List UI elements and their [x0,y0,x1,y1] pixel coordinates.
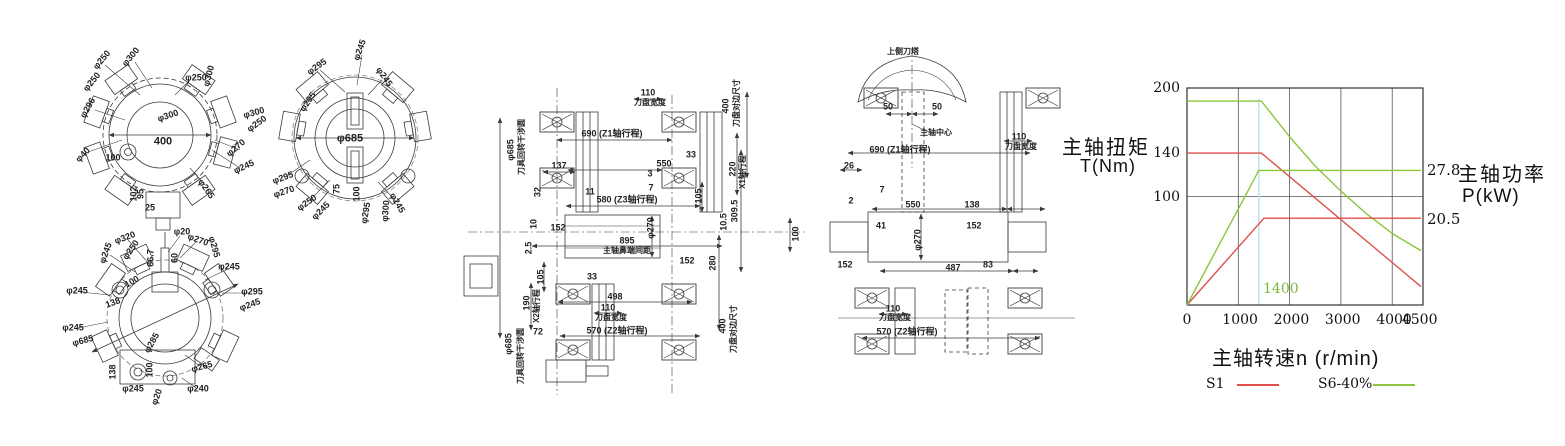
dimension-label: 33 [587,273,597,282]
dimension-label: 100 [792,226,801,241]
dimension-label: 152 [550,224,565,233]
dimension-label: 3 [647,170,652,179]
chart-ylabel-torque-unit: T(Nm) [1080,156,1136,177]
dimension-label: X1轴行程 [739,155,747,189]
dimension-label: 580 (Z3轴行程) [596,196,657,205]
dimension-label: φ245 [352,38,368,61]
dimension-label: φ300 [381,200,392,222]
dimension-label: 550 [656,160,671,169]
dimension-label: 110 [601,304,616,313]
dimension-label: φ250 [121,239,141,262]
dimension-label: 105 [695,188,704,203]
dimension-label: 690 (Z1轴行程) [581,130,642,139]
dimension-label: 110 [886,305,901,314]
dimension-label: φ295 [207,235,221,258]
dimension-label: φ295 [271,170,294,186]
dimension-label: φ270 [186,232,209,248]
chart-xlabel: 主轴转速n (r/min) [1212,342,1379,371]
turret-disc-a [84,62,240,230]
dimension-label: 2 [848,197,853,206]
dimension-label: 110 [641,89,656,98]
dimension-label: φ245 [310,200,332,222]
dimension-label: φ245 [122,385,143,394]
chart-tick-label: 1000 [1222,312,1254,328]
dimension-label: 100 [105,154,120,163]
dimension-label: 刀盘宽度 [879,314,911,322]
dimension-label: φ320 [113,230,136,246]
dimension-label: φ270 [272,184,295,199]
dimension-label: 152 [679,257,694,266]
dimension-label: 280 [709,255,718,270]
dimension-label: φ300 [202,64,216,87]
dimension-label: 83 [983,261,993,270]
dimension-label: φ685 [505,333,514,354]
legend-swatch-s6 [1373,384,1415,386]
dimension-label: 400 [719,318,728,333]
dimension-label: φ245 [374,66,394,89]
dimension-label: 220 [729,161,738,176]
chart-annotation-base-speed: 1400 [1263,281,1299,297]
dimension-label: φ295 [360,202,373,225]
chart-tick-label: 3000 [1325,312,1357,328]
dimension-label: 刀盘宽度 [1005,143,1037,151]
dimension-label: 刀盘对边尺寸 [730,305,738,353]
dimension-label: 刀盘宽度 [595,314,627,322]
dimension-label: 50 [932,103,942,112]
dimension-label: 137 [551,162,566,171]
dimension-label: φ245 [62,324,83,333]
dimension-label: 刀盘对边尺寸 [733,79,741,127]
dimension-label: 10 [530,219,539,229]
dimension-label: 7 [648,184,653,193]
dimension-label: φ245 [232,158,255,175]
dimension-label: 50 [883,103,893,112]
dimension-label: φ20 [174,228,190,237]
dimension-label: 487 [945,264,960,273]
dimension-label: 25 [145,204,155,213]
dimension-label: 26 [844,162,854,171]
engineering-drawing-sheet: φ250φ300φ250φ296φ250φ300φ300φ300φ250φ270… [0,0,1565,446]
chart-tick-label: 4500 [1402,312,1434,328]
dimension-label: 309.5 [731,200,740,223]
dimension-label: 138 [964,201,979,210]
dimension-label: 570 (Z2轴行程) [586,327,647,336]
dimension-label: φ270 [647,217,656,238]
dimension-label: 60 [171,253,180,263]
dimension-label: 152 [966,222,981,231]
dimension-label: 190 [523,295,532,310]
dimension-label: φ685 [507,139,516,160]
dimension-label: φ250 [82,71,103,93]
dimension-label: 895 [619,237,634,246]
legend-label-s1: S1 [1206,376,1225,392]
dimension-label: φ250 [296,193,319,213]
dimension-label: φ300 [156,108,179,123]
turret-disc-c [78,232,250,388]
dimension-label: φ295 [241,288,262,297]
dimension-label: 400 [154,137,172,148]
dimension-label: 刀具回转干涉圆 [517,328,525,384]
dimension-label: 75 [333,184,342,194]
dimension-label: 66.7 [147,249,156,267]
chart-tick-label: 200 [1148,80,1180,96]
chart-tick-label: 0 [1171,312,1203,328]
dimension-label: φ250 [185,74,206,83]
dimension-label: 100 [146,362,155,377]
dimension-label: φ240 [187,385,208,394]
dimension-label: φ265 [190,360,213,374]
dimension-label: 10.5 [720,213,729,231]
dimension-label: 2.5 [525,242,534,255]
dimension-label: 刀具回转干涉圆 [518,119,526,175]
dimension-label: 33 [686,151,696,160]
dimension-label: φ40 [74,146,92,164]
chart-tick-label: 140 [1148,145,1180,161]
dimension-label: φ295 [298,91,318,114]
dimension-label: 138 [109,364,118,379]
dimension-label: X2轴行程 [533,289,541,323]
dimension-label: 95 [137,189,146,199]
chart-annotation-power-s1: 20.5 [1427,210,1460,228]
dimension-label: φ245 [98,241,114,264]
side-view-upper [830,48,1075,354]
dimension-label: 102 [130,186,139,201]
dimension-label: φ685 [337,134,363,145]
side-view-main [464,88,806,395]
dimension-label: φ300 [121,46,142,68]
dimension-label: φ245 [388,191,407,214]
dimension-label: 刀盘宽度 [634,99,666,107]
dimension-label: φ270 [914,229,923,250]
dimension-label: φ270 [225,138,247,159]
dimension-label: 138 [104,296,121,310]
dimension-label: 主轴中心 [920,129,952,137]
dimension-label: φ265 [196,178,216,201]
dimension-label: 主轴鼻端间距 [603,247,651,255]
dimension-label: φ295 [306,57,329,77]
chart-tick-label: 4000 [1376,312,1408,328]
dimension-label: 7 [879,186,884,195]
chart-ylabel-power-unit: P(kW) [1462,186,1520,208]
chart-tick-label: 2000 [1274,312,1306,328]
chart-ylabel-power: 主轴功率 [1458,158,1546,187]
legend-swatch-s1 [1237,384,1279,386]
dimension-label: 690 (Z1轴行程) [869,146,930,155]
dimension-label: 72 [533,328,543,337]
dimension-label: 11 [585,188,595,197]
dimension-label: φ296 [79,96,98,119]
chart-annotation-power-s6: 27.8 [1427,161,1460,179]
dimension-label: 110 [1012,133,1027,142]
dimension-label: φ245 [218,263,239,272]
dimension-label: 41 [876,222,886,231]
dimension-label: φ300 [242,106,265,120]
turret-disc-b [279,55,432,204]
chart-tick-label: 100 [1148,189,1180,205]
dimension-label: φ285 [143,331,162,354]
dimension-label: 550 [905,201,920,210]
dimension-label: 100 [353,186,362,201]
dimension-label: 152 [837,261,852,270]
dimension-label: 100 [123,274,141,289]
dimension-label: φ20 [150,388,164,407]
dimension-label: 498 [607,293,622,302]
dimension-label: 32 [534,187,543,197]
dimension-label: φ250 [246,114,269,134]
dimension-label: 400 [722,98,731,113]
dimension-label: φ685 [71,334,94,348]
dimension-label: 上侧刀塔 [887,48,919,56]
dimension-label: φ245 [66,287,87,296]
dimension-label: φ250 [92,49,113,71]
dimension-label: 105 [537,269,546,284]
dimension-label: 570 (Z2轴行程) [876,328,937,337]
legend-label-s6: S6-40% [1318,376,1372,392]
dimension-label: φ245 [238,297,261,313]
